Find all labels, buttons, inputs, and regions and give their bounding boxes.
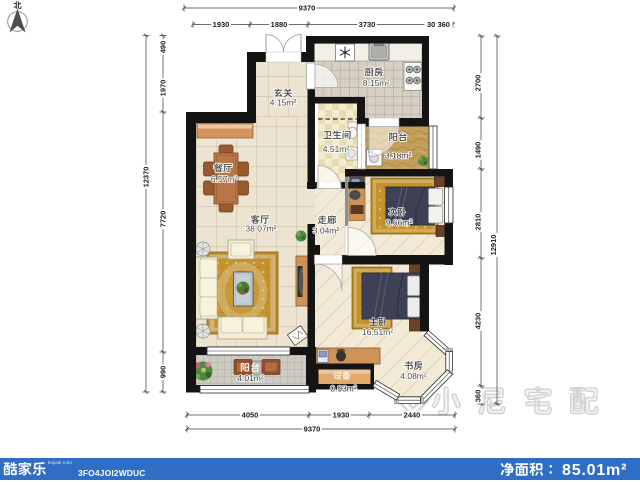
svg-text:3.18m²: 3.18m² [385, 151, 412, 161]
svg-text:8.15m²: 8.15m² [363, 78, 390, 88]
svg-text:1930: 1930 [333, 411, 350, 420]
svg-text:990: 990 [159, 366, 168, 379]
svg-text:1490: 1490 [474, 142, 483, 159]
svg-text:3FO4JOI2WDUC: 3FO4JOI2WDUC [78, 468, 146, 478]
svg-text:9.66m²: 9.66m² [386, 218, 413, 228]
svg-text:38.07m²: 38.07m² [245, 224, 276, 234]
svg-text:7720: 7720 [159, 211, 168, 228]
svg-text:4050: 4050 [242, 411, 259, 420]
svg-text:4.08m²: 4.08m² [400, 371, 427, 381]
svg-text:9370: 9370 [304, 425, 321, 434]
svg-text:2810: 2810 [474, 214, 483, 231]
svg-text:9370: 9370 [299, 4, 316, 13]
svg-text:85.01m²: 85.01m² [562, 462, 627, 479]
svg-text:4.01m²: 4.01m² [237, 373, 264, 383]
svg-text:12910: 12910 [489, 235, 498, 256]
svg-text:4230: 4230 [474, 313, 483, 330]
svg-text:30 360: 30 360 [427, 20, 450, 29]
svg-text:kujiale.com: kujiale.com [48, 460, 72, 466]
svg-text:1880: 1880 [271, 20, 288, 29]
svg-text:2700: 2700 [474, 75, 483, 92]
svg-text:1970: 1970 [159, 80, 168, 97]
svg-text:12370: 12370 [142, 167, 151, 188]
svg-text:2440: 2440 [404, 411, 421, 420]
svg-text:16.51m²: 16.51m² [362, 327, 393, 337]
svg-text:6.57m²: 6.57m² [211, 174, 238, 184]
svg-text:0.93m²: 0.93m² [330, 384, 357, 394]
svg-text:1930: 1930 [213, 20, 230, 29]
svg-text:3730: 3730 [359, 20, 376, 29]
svg-text:360: 360 [474, 390, 483, 403]
svg-text:490: 490 [159, 41, 168, 54]
svg-text:4.15m²: 4.15m² [270, 98, 297, 108]
svg-text:4.51m²: 4.51m² [323, 144, 350, 154]
svg-text:3.04m²: 3.04m² [313, 226, 340, 236]
